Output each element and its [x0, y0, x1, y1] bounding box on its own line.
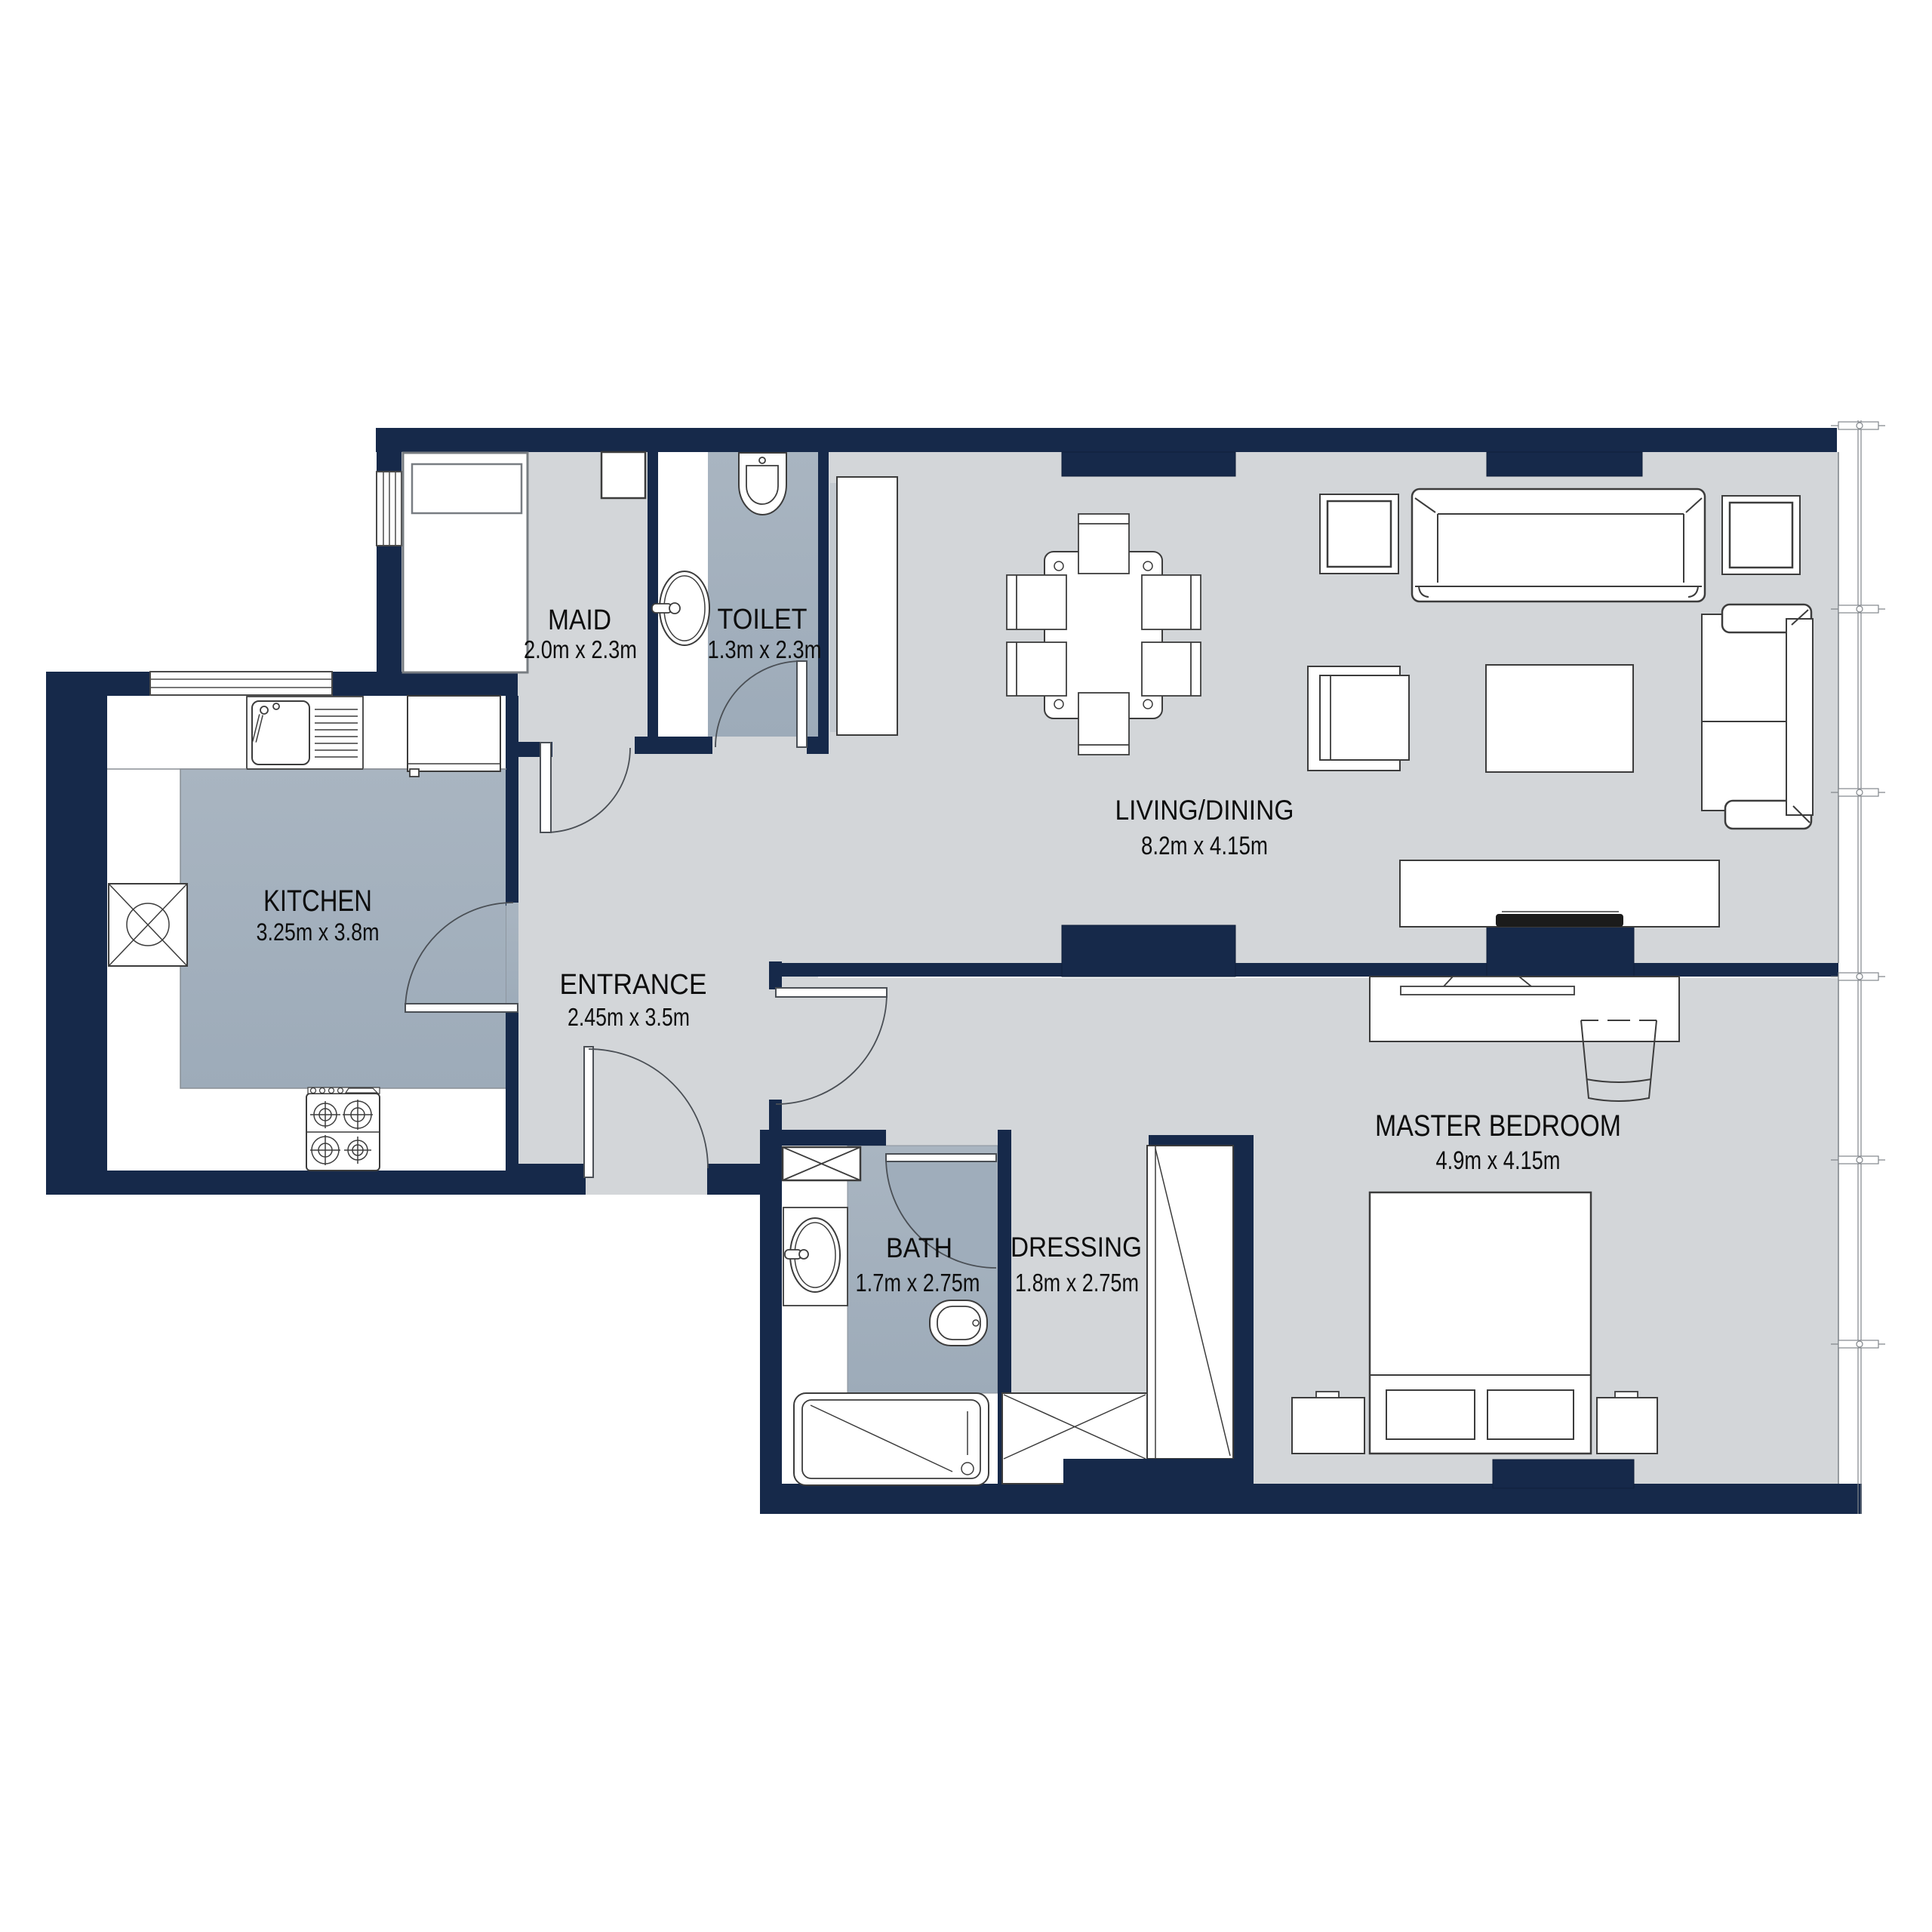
svg-text:1.8m x 2.75m: 1.8m x 2.75m	[1015, 1269, 1139, 1297]
svg-text:2.0m x 2.3m: 2.0m x 2.3m	[524, 635, 637, 663]
svg-text:MAID: MAID	[548, 605, 611, 636]
svg-text:8.2m x 4.15m: 8.2m x 4.15m	[1141, 832, 1268, 860]
svg-text:DRESSING: DRESSING	[1011, 1232, 1142, 1263]
svg-text:4.9m x 4.15m: 4.9m x 4.15m	[1436, 1146, 1561, 1175]
svg-text:LIVING/DINING: LIVING/DINING	[1115, 795, 1294, 826]
svg-text:ENTRANCE: ENTRANCE	[560, 969, 707, 1001]
svg-text:MASTER BEDROOM: MASTER BEDROOM	[1375, 1109, 1621, 1143]
svg-text:3.25m x 3.8m: 3.25m x 3.8m	[257, 918, 380, 946]
svg-text:1.3m x 2.3m: 1.3m x 2.3m	[708, 635, 822, 663]
svg-text:BATH: BATH	[886, 1232, 952, 1263]
svg-text:2.45m x 3.5m: 2.45m x 3.5m	[568, 1003, 690, 1031]
svg-text:TOILET: TOILET	[718, 604, 808, 635]
svg-text:1.7m x 2.75m: 1.7m x 2.75m	[856, 1269, 980, 1297]
svg-text:KITCHEN: KITCHEN	[263, 884, 372, 918]
